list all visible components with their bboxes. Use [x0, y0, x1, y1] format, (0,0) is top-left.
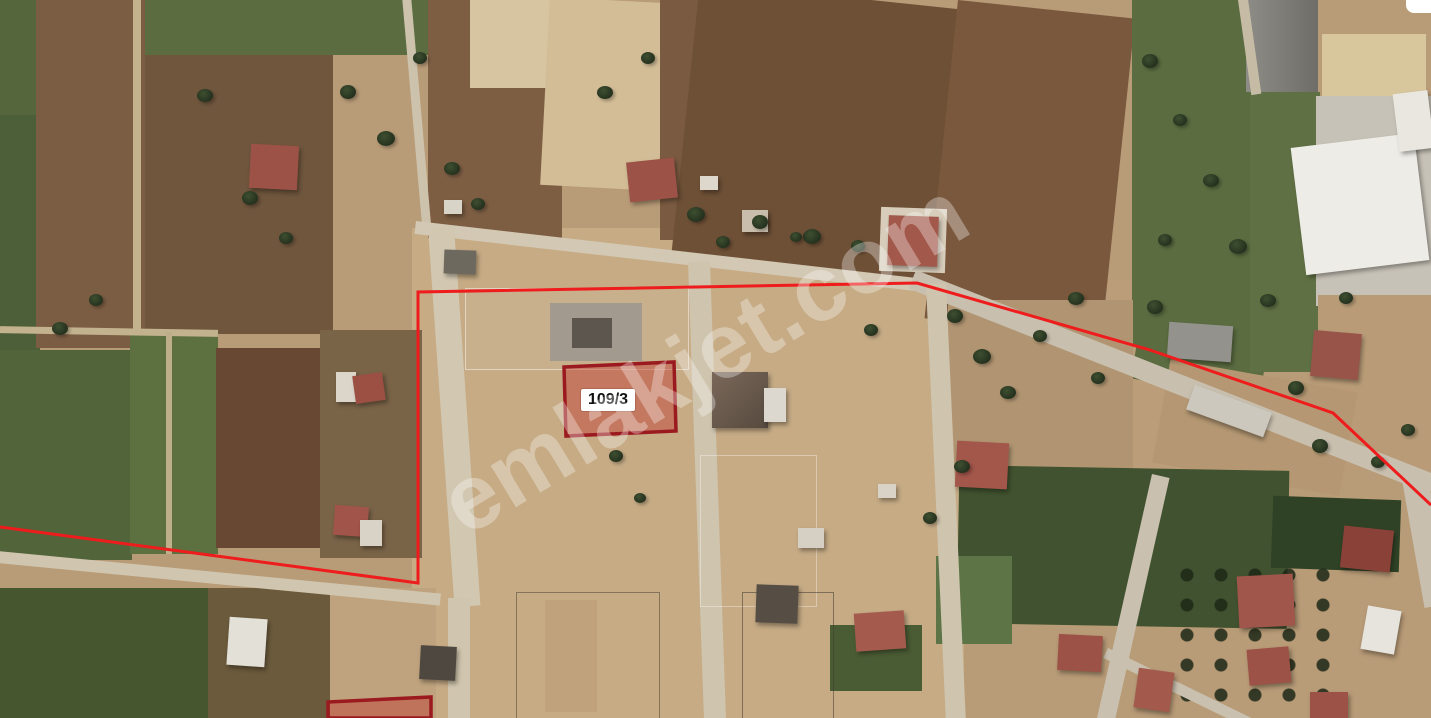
tree	[1371, 456, 1385, 468]
orchard-left-mid	[145, 52, 333, 334]
tree	[197, 89, 213, 102]
tree	[471, 198, 485, 210]
tree	[1173, 114, 1187, 126]
house-red-roof-5	[352, 372, 386, 404]
tree	[864, 324, 878, 336]
road-track-left-v	[133, 0, 141, 335]
house-red-roof-2	[626, 158, 678, 203]
house-red-roof-13	[1310, 692, 1348, 718]
tree	[242, 191, 258, 205]
tree	[1068, 292, 1084, 305]
shed-white-1	[700, 176, 718, 190]
road-track-mid-v	[166, 332, 172, 554]
shed-white-3	[878, 484, 896, 498]
house-white-wing-left	[360, 520, 382, 546]
tree	[1158, 234, 1172, 246]
tree	[1288, 381, 1304, 395]
shed-white-2	[798, 528, 824, 548]
tree	[1339, 292, 1353, 304]
vineyard-bottom-left	[0, 588, 208, 718]
house-red-roof-8	[1237, 574, 1296, 629]
tree	[973, 349, 991, 364]
house-red-roof-7	[1310, 330, 1362, 380]
house-red-roof-4	[854, 610, 907, 651]
field-green-top-strip	[145, 0, 435, 55]
tree	[1147, 300, 1163, 314]
tree	[1401, 424, 1415, 436]
tree	[716, 236, 730, 248]
tree	[1000, 386, 1016, 399]
shed-gray	[444, 249, 477, 274]
field-plowed-dark	[216, 348, 322, 548]
tree	[641, 52, 655, 64]
tree	[52, 322, 68, 335]
field-green-strips-topright	[1132, 0, 1250, 345]
warehouse-white-small	[1393, 90, 1431, 152]
house-red-roof-10	[1247, 646, 1292, 686]
road-right-edge	[1402, 475, 1431, 608]
parcel-secondary[interactable]	[328, 697, 431, 718]
field-green-mid-left	[130, 332, 218, 554]
building-white-long	[1360, 605, 1401, 654]
building-dark	[755, 584, 798, 623]
tree	[634, 493, 646, 503]
lot-outline-3	[516, 592, 660, 718]
house-dark-roadside	[419, 645, 457, 681]
tree	[954, 460, 970, 473]
satellite-map[interactable]: 109/3 emlakjet.com	[0, 0, 1431, 718]
tree	[1033, 330, 1047, 342]
map-attribution-box	[1406, 0, 1431, 13]
tree	[1260, 294, 1276, 307]
house-red-roof-12	[1133, 668, 1174, 713]
house-red-roof-11	[1057, 634, 1103, 672]
tree	[1142, 54, 1158, 68]
house-red-roof-topleft	[249, 144, 299, 190]
tree	[1229, 239, 1247, 254]
warehouse-white	[1291, 133, 1430, 275]
tree	[687, 207, 705, 222]
tree	[597, 86, 613, 99]
field-green-topleft	[0, 0, 38, 118]
house-red-roof-9	[1340, 526, 1394, 573]
tree	[1091, 372, 1105, 384]
tree	[377, 131, 395, 146]
tree	[752, 215, 768, 229]
tree	[89, 294, 103, 306]
tree	[340, 85, 356, 99]
field-green-left	[0, 115, 40, 353]
warehouse-gray-roadside	[1167, 322, 1233, 362]
tree	[923, 512, 937, 524]
tree	[1312, 439, 1328, 453]
tree	[279, 232, 293, 244]
tree	[444, 162, 460, 175]
shed-white-4	[444, 200, 462, 214]
tree	[1203, 174, 1219, 187]
construction-blocks	[572, 318, 612, 348]
field-green-left-mid	[0, 350, 132, 560]
building-white-bottom-left	[226, 617, 267, 668]
house-center-white-wing	[764, 388, 786, 422]
tree	[947, 309, 963, 323]
tree	[413, 52, 427, 64]
